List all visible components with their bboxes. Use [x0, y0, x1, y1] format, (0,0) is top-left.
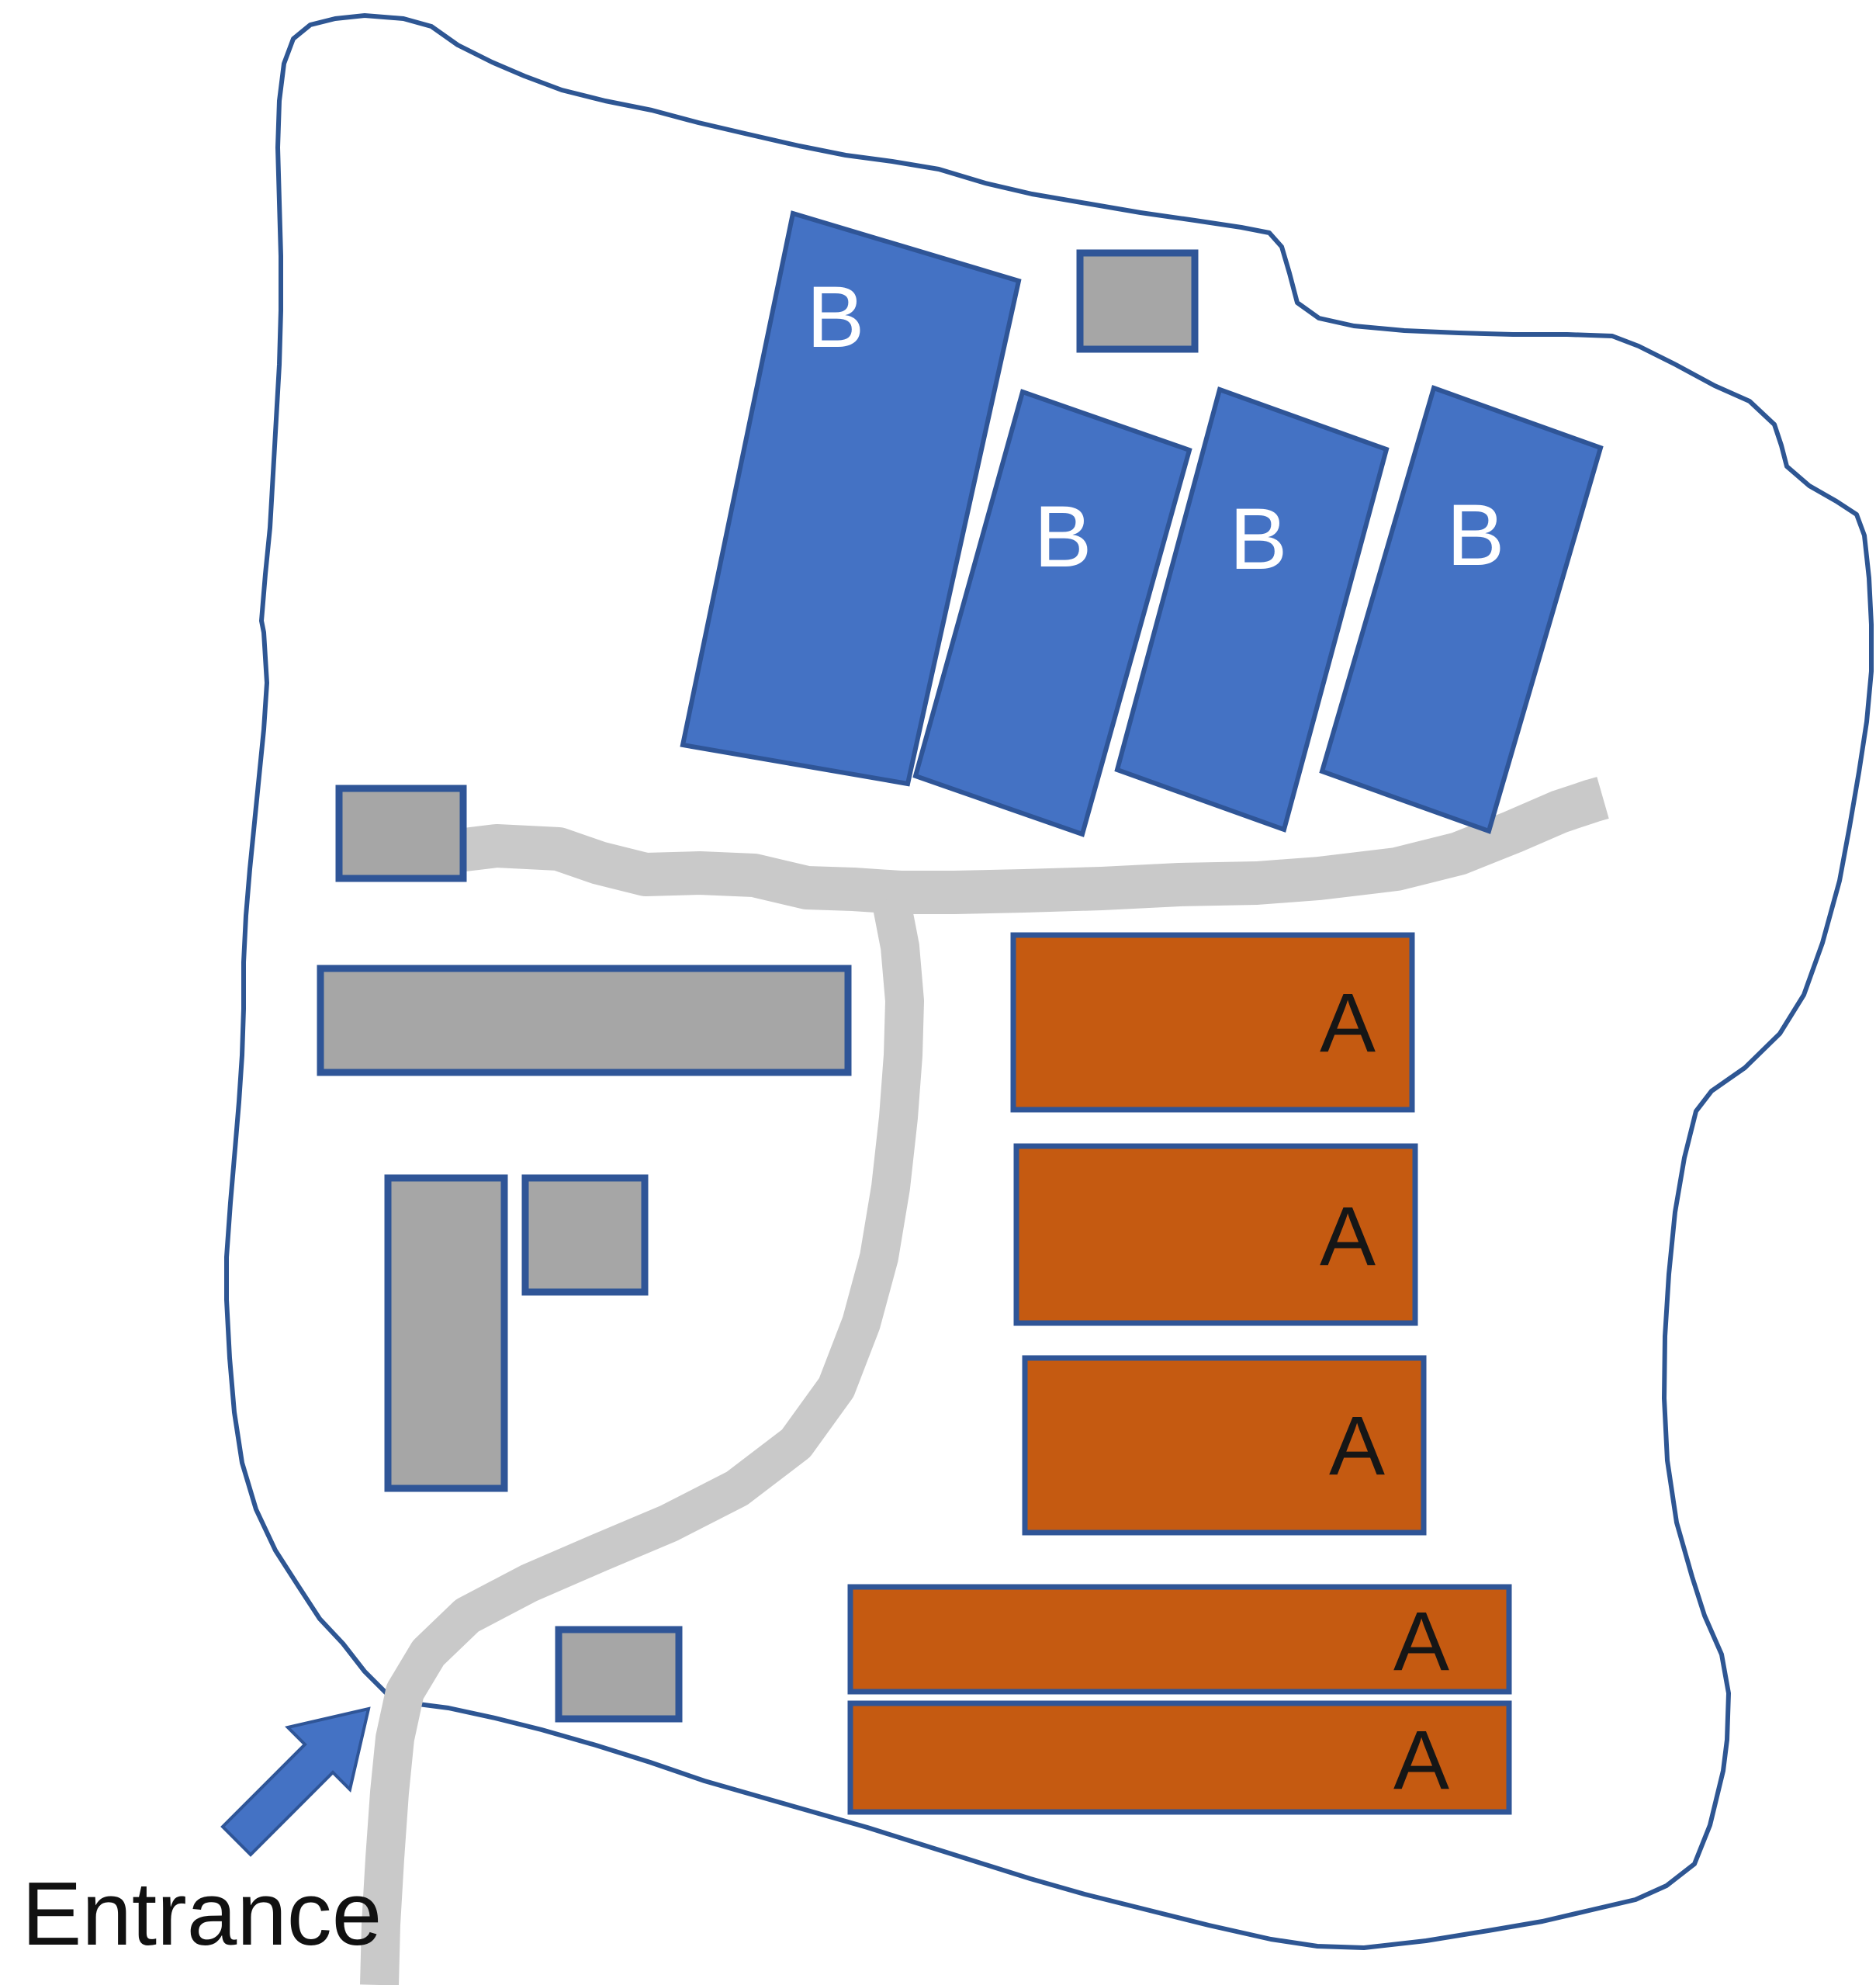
entrance-arrow-icon [223, 1709, 369, 1855]
building-b-3-label: B [1230, 490, 1288, 587]
gray-building-l-vertical [388, 1178, 504, 1488]
gray-building-west-square [339, 788, 463, 878]
building-b-4-label: B [1447, 487, 1505, 584]
building-a-5-label: A [1393, 1713, 1449, 1807]
building-b-1-label: B [807, 268, 865, 365]
building-a-3-label: A [1329, 1398, 1385, 1492]
building-b-2-label: B [1034, 488, 1092, 585]
building-a-4-label: A [1393, 1594, 1449, 1688]
site-map-page: B B B B A A A A A Entrance [0, 0, 1876, 1985]
gray-building-entrance-square [559, 1630, 679, 1719]
entrance-label: Entrance [22, 1863, 382, 1964]
site-map: B B B B A A A A A Entrance [0, 0, 1876, 1985]
building-a-1-label: A [1320, 975, 1376, 1069]
building-a-2-label: A [1320, 1189, 1376, 1283]
gray-building-north [1080, 253, 1195, 349]
gray-building-l-small [525, 1178, 645, 1292]
gray-building-wide-bar [320, 968, 848, 1072]
